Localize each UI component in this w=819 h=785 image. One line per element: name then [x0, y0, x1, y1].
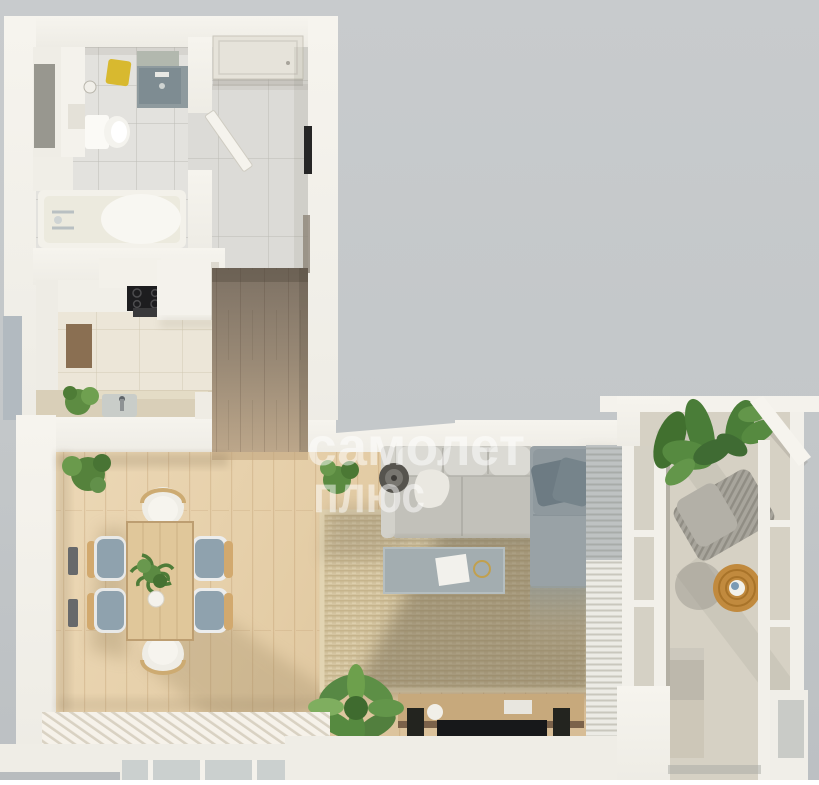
svg-text:плюс: плюс [313, 466, 425, 524]
